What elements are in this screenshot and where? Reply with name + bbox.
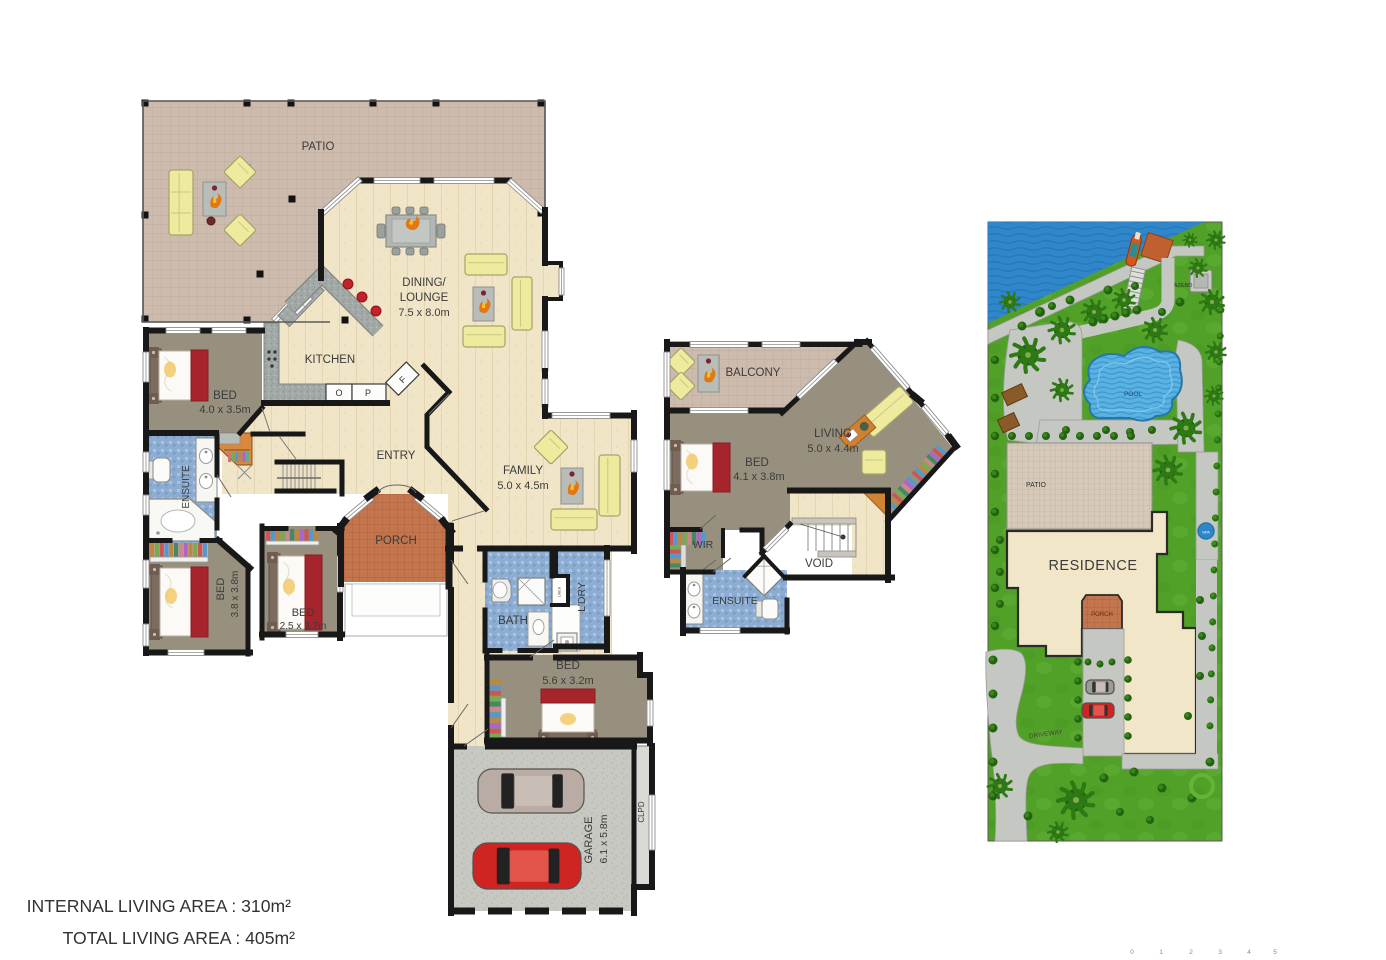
svg-text:4.1 x 3.8m: 4.1 x 3.8m: [733, 471, 784, 483]
svg-text:BED: BED: [745, 457, 769, 469]
svg-text:PATIO: PATIO: [302, 141, 335, 153]
svg-text:LIVING: LIVING: [814, 428, 852, 440]
svg-text:WIR: WIR: [693, 539, 714, 551]
svg-text:3.8 x 3.8m: 3.8 x 3.8m: [230, 571, 241, 618]
svg-text:BATH: BATH: [498, 615, 528, 627]
svg-text:SPA: SPA: [1202, 530, 1210, 535]
svg-text:BED: BED: [292, 607, 315, 619]
svg-text:ENSUITE: ENSUITE: [712, 595, 758, 607]
svg-text:0: 0: [1130, 949, 1134, 956]
svg-text:3: 3: [1218, 949, 1222, 956]
svg-text:7.5 x 8.0m: 7.5 x 8.0m: [398, 307, 449, 319]
svg-text:PORCH: PORCH: [375, 535, 417, 547]
svg-text:GARAGE: GARAGE: [583, 816, 595, 863]
svg-text:RESIDENCE: RESIDENCE: [1048, 558, 1137, 574]
svg-text:LINEN: LINEN: [558, 586, 562, 597]
svg-text:BED: BED: [556, 660, 580, 672]
svg-text:PATIO: PATIO: [1026, 482, 1047, 489]
svg-text:2.5 x 3.7m: 2.5 x 3.7m: [280, 621, 327, 632]
svg-text:BED: BED: [213, 390, 237, 402]
svg-text:4: 4: [1247, 949, 1251, 956]
svg-text:BED: BED: [215, 578, 227, 601]
svg-text:ENSUITE: ENSUITE: [181, 465, 192, 509]
svg-text:5.6 x 3.2m: 5.6 x 3.2m: [542, 675, 593, 687]
svg-text:LOUNGE: LOUNGE: [400, 292, 449, 304]
svg-text:L'DRY: L'DRY: [576, 582, 588, 612]
svg-text:5.0 x 4.4m: 5.0 x 4.4m: [807, 443, 858, 455]
svg-text:O: O: [335, 388, 342, 398]
svg-text:P: P: [365, 388, 371, 398]
svg-text:5.0 x 4.5m: 5.0 x 4.5m: [497, 480, 548, 492]
svg-text:2: 2: [1189, 949, 1193, 956]
svg-text:INTERNAL LIVING AREA : 310m²: INTERNAL LIVING AREA : 310m²: [27, 896, 291, 916]
svg-text:6.1 x 5.8m: 6.1 x 5.8m: [598, 814, 610, 863]
svg-text:PORCH: PORCH: [1091, 612, 1113, 618]
svg-text:ENTRY: ENTRY: [377, 450, 416, 462]
svg-text:TOTAL LIVING AREA : 405m²: TOTAL LIVING AREA : 405m²: [63, 928, 296, 948]
svg-text:POOL: POOL: [1124, 391, 1142, 398]
svg-text:4.0 x 3.5m: 4.0 x 3.5m: [199, 404, 250, 416]
svg-text:VOID: VOID: [805, 558, 833, 570]
svg-text:5: 5: [1273, 949, 1277, 956]
svg-text:1: 1: [1159, 949, 1163, 956]
svg-text:DINING/: DINING/: [402, 277, 446, 289]
svg-text:BALCONY: BALCONY: [726, 367, 781, 379]
svg-text:CLPD: CLPD: [637, 801, 646, 823]
svg-text:FAMILY: FAMILY: [503, 465, 543, 477]
svg-text:KITCHEN: KITCHEN: [305, 354, 355, 366]
